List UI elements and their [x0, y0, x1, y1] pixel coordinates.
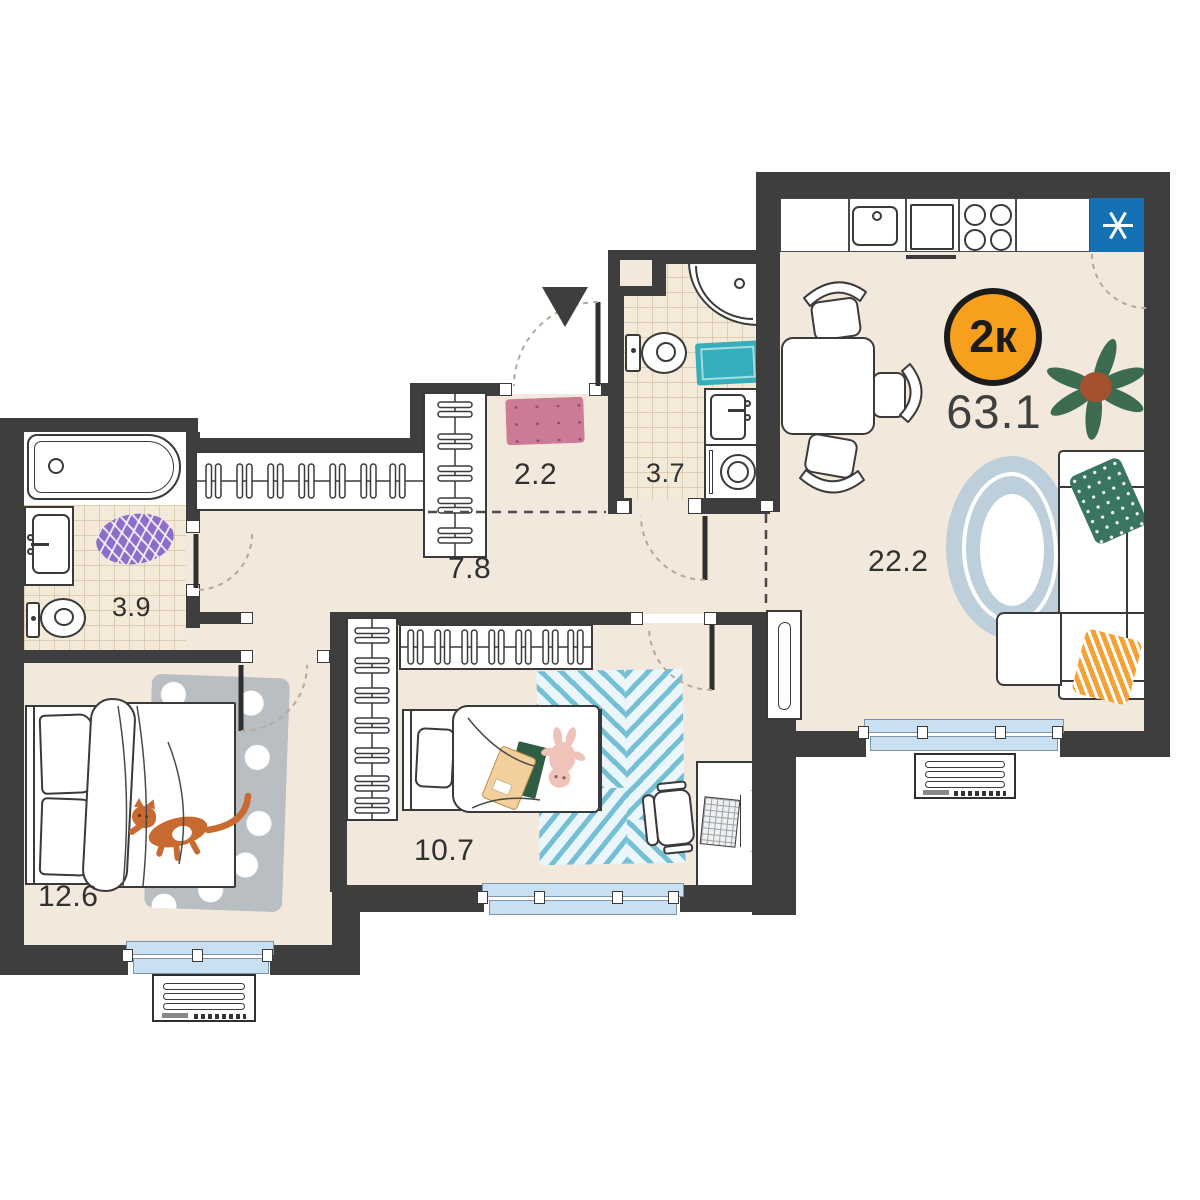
- window-mullion: [534, 891, 545, 904]
- window-mullion: [612, 891, 623, 904]
- window-mullion: [477, 891, 488, 904]
- ac-vent-dashes: [194, 1014, 246, 1019]
- cat: [128, 800, 248, 860]
- ac-vent-gray: [162, 1013, 188, 1018]
- dining-chair-seat: [809, 296, 862, 342]
- room-area-label-bedroom-second: 10.7: [414, 834, 474, 868]
- wall: [410, 383, 512, 396]
- sink-spout-2: [31, 543, 49, 546]
- wall: [756, 172, 780, 512]
- floor-plan: 22.2 7.8 2.2 3.7 3.9 12.6 10.7 2к 63.1: [0, 0, 1200, 1200]
- door-jamb: [630, 612, 643, 625]
- notebook-label: [492, 778, 513, 796]
- dining-chair-seat: [803, 432, 859, 480]
- ac-unit: [914, 753, 1016, 799]
- toilet-button: [631, 348, 636, 353]
- ac-grille-line: [925, 761, 1005, 768]
- door-jamb: [317, 650, 330, 663]
- toilet-second: [24, 596, 86, 644]
- window-mullion: [262, 949, 273, 962]
- toy-bunny: [532, 725, 594, 796]
- fridge: [1090, 198, 1146, 252]
- ac-vent-dashes: [954, 791, 1006, 796]
- room-area-label-bathroom-second: 3.9: [112, 592, 151, 623]
- toilet: [624, 330, 690, 376]
- window-mullion: [122, 949, 133, 962]
- wall: [330, 612, 347, 892]
- window-mullion: [1052, 726, 1063, 739]
- door-jamb: [499, 383, 512, 396]
- ac-unit: [152, 974, 256, 1022]
- apartment-type-badge: 2к: [944, 288, 1042, 386]
- ac-grille-line: [163, 1003, 245, 1010]
- kitchen-worktop: [910, 204, 954, 250]
- door-jamb: [688, 498, 702, 514]
- burner: [964, 204, 986, 226]
- sink-tap-dot-2: [27, 548, 34, 555]
- window-living-outer: [864, 719, 1064, 733]
- room-area-label-bathroom: 3.7: [646, 458, 685, 489]
- laptop-keyboard: [700, 796, 741, 848]
- plant: [1046, 342, 1146, 438]
- dining-table: [781, 337, 875, 435]
- window-kids-outer: [482, 883, 684, 897]
- wall: [1144, 172, 1170, 757]
- sink-tap-dot-2: [27, 534, 34, 541]
- counter-divider: [1015, 198, 1017, 252]
- washer-drum-inner: [727, 461, 749, 483]
- window-mullion: [858, 726, 869, 739]
- window-mullion: [917, 726, 928, 739]
- wall: [680, 885, 756, 912]
- door-jamb: [240, 612, 253, 624]
- bunny-eye: [562, 776, 565, 779]
- mirror-glass: [778, 621, 791, 710]
- oven-handle: [906, 255, 956, 259]
- door-jamb: [240, 650, 253, 663]
- ac-grille-line: [925, 771, 1005, 778]
- office-chair: [640, 779, 701, 858]
- entry-doormat: [505, 397, 585, 446]
- burner: [990, 229, 1012, 251]
- cat-eye: [138, 814, 141, 817]
- room-area-label-living: 22.2: [868, 545, 928, 579]
- sofa-seam: [1060, 612, 1146, 614]
- entrance-arrow-icon: [542, 287, 588, 327]
- door-jamb: [186, 520, 200, 533]
- wall: [332, 612, 640, 625]
- office-chair-seat: [652, 788, 696, 848]
- counter-divider: [905, 198, 907, 252]
- living-rug-center: [980, 494, 1044, 606]
- wall: [0, 418, 24, 975]
- toilet-button: [31, 616, 36, 621]
- sofa-chaise: [996, 612, 1062, 686]
- room-area-label-bedroom: 12.6: [38, 880, 98, 914]
- burner: [990, 204, 1012, 226]
- wall: [24, 650, 250, 663]
- stove: [958, 198, 1015, 252]
- toilet-tank: [625, 334, 641, 372]
- washer-door-bar: [709, 450, 713, 494]
- wall: [0, 418, 198, 432]
- counter-divider: [848, 198, 850, 252]
- wall: [186, 438, 426, 454]
- window-mullion: [192, 949, 203, 962]
- shower-handle: [734, 278, 745, 289]
- bath-sink-spout: [728, 409, 746, 412]
- room-area-label-entry: 2.2: [514, 458, 557, 492]
- door-jamb: [616, 500, 630, 514]
- window-living-inner: [870, 736, 1058, 751]
- bath-mat-teal-border: [700, 346, 756, 381]
- kids-bed-pillow: [414, 727, 455, 789]
- bath-sink-tap-dot: [744, 400, 751, 407]
- dining-chair-seat: [872, 372, 906, 418]
- door-jamb: [186, 584, 200, 597]
- door-jamb: [760, 500, 774, 512]
- vent-shaft-inset: [620, 260, 652, 286]
- bath-sink-tap-dot: [744, 414, 751, 421]
- ac-vent-gray: [923, 790, 949, 795]
- door-jamb: [704, 612, 717, 625]
- window-kids-inner: [489, 900, 677, 915]
- mirror: [766, 610, 802, 720]
- ac-grille-line: [163, 983, 245, 990]
- toilet-drain: [54, 608, 74, 626]
- wall: [270, 945, 360, 975]
- apartment-type-label: 2к: [969, 311, 1017, 363]
- wall: [186, 612, 248, 624]
- toilet-drain: [656, 342, 676, 362]
- bath-mat-teal: [695, 340, 761, 385]
- wall: [1060, 731, 1170, 757]
- bathtub-drain: [48, 458, 64, 474]
- ac-grille-line: [925, 781, 1005, 788]
- bunny-eye: [554, 775, 557, 778]
- window-mullion: [995, 726, 1006, 739]
- cat-ear: [134, 798, 144, 807]
- room-area-label-hallway: 7.8: [448, 552, 491, 586]
- wall: [756, 172, 1170, 198]
- plant-pot: [1080, 372, 1112, 402]
- door-jamb: [589, 383, 602, 396]
- total-area-label: 63.1: [936, 384, 1052, 439]
- ac-grille-line: [163, 993, 245, 1000]
- cat-head: [132, 806, 156, 828]
- bath-sink-basin: [710, 394, 746, 440]
- cat-eye: [145, 815, 148, 818]
- kitchen-faucet: [872, 211, 882, 221]
- fridge-snowflake-icon: [1103, 210, 1133, 240]
- window-mullion: [668, 891, 679, 904]
- burner: [964, 229, 986, 251]
